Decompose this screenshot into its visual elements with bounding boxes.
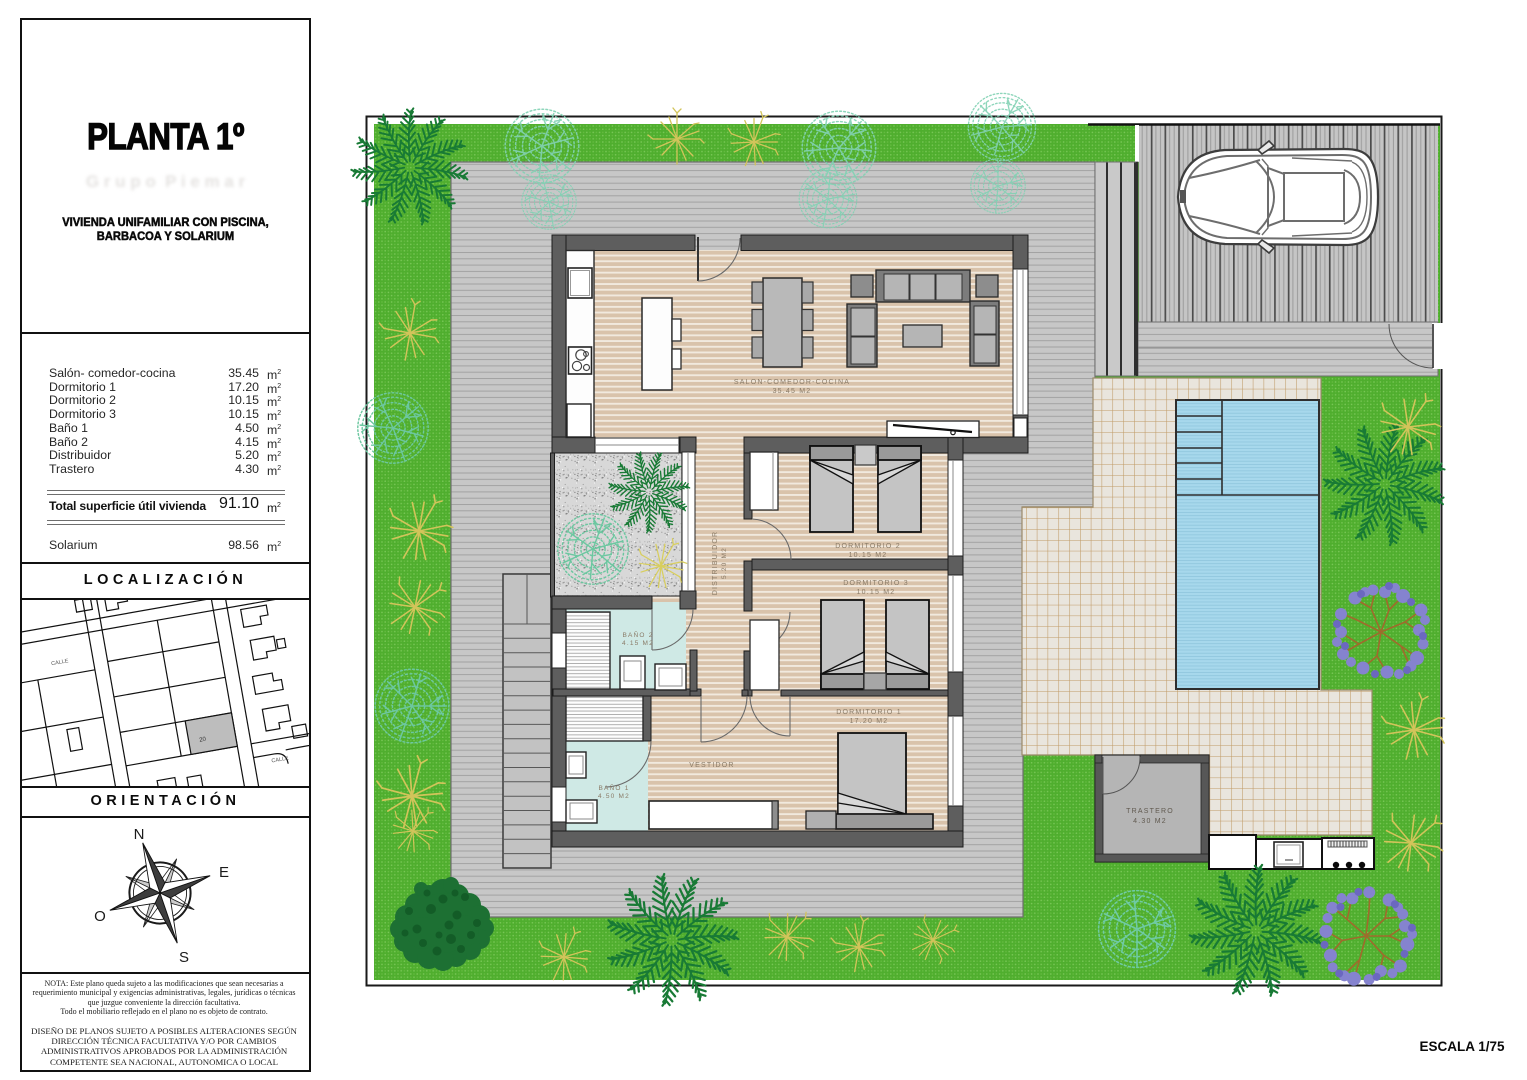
svg-text:17.20 M2: 17.20 M2 — [850, 718, 889, 725]
svg-text:5.20 M2: 5.20 M2 — [721, 547, 728, 579]
svg-text:TRASTERO: TRASTERO — [1126, 808, 1174, 815]
svg-text:SALON-COMEDOR-COCINA: SALON-COMEDOR-COCINA — [734, 379, 850, 386]
svg-text:DORMITORIO 1: DORMITORIO 1 — [836, 709, 902, 716]
svg-text:35.45 M2: 35.45 M2 — [773, 388, 812, 395]
svg-text:BAÑO 1: BAÑO 1 — [598, 783, 629, 792]
svg-text:VESTIDOR: VESTIDOR — [689, 762, 734, 769]
svg-text:10.15 M2: 10.15 M2 — [849, 552, 888, 559]
svg-text:4.30 M2: 4.30 M2 — [1133, 818, 1167, 825]
svg-text:10.15 M2: 10.15 M2 — [857, 589, 896, 596]
svg-text:BAÑO 2: BAÑO 2 — [622, 630, 653, 639]
svg-text:DORMITORIO 3: DORMITORIO 3 — [843, 580, 909, 587]
svg-text:DORMITORIO 2: DORMITORIO 2 — [835, 543, 901, 550]
svg-text:4.50 M2: 4.50 M2 — [598, 793, 630, 800]
svg-text:ESCALA 1/75: ESCALA 1/75 — [1419, 1039, 1505, 1054]
svg-text:4.15 M2: 4.15 M2 — [622, 640, 654, 647]
svg-text:DISTRIBUIDOR: DISTRIBUIDOR — [712, 531, 719, 596]
